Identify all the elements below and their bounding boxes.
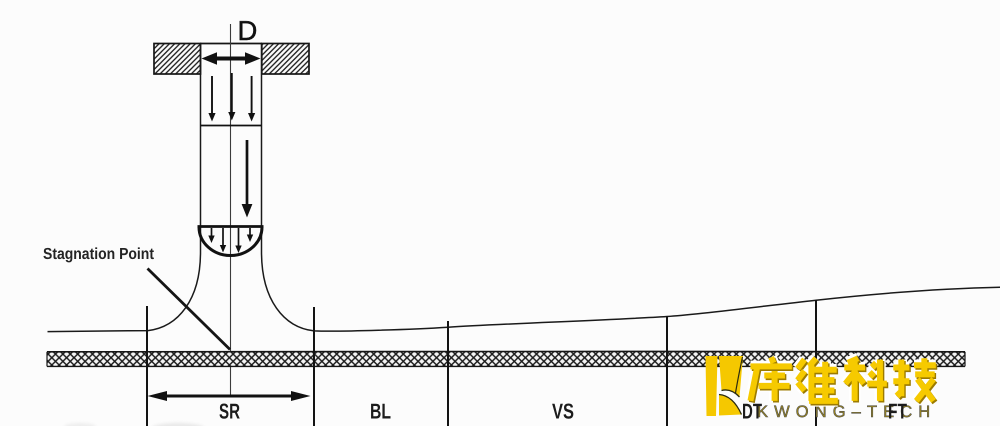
svg-text:D: D [238, 15, 258, 46]
svg-text:VS: VS [552, 400, 574, 424]
svg-text:SR: SR [219, 400, 240, 424]
svg-text:KWONG–TECH: KWONG–TECH [757, 403, 936, 421]
svg-text:DT: DT [742, 400, 762, 424]
svg-text:FT: FT [888, 400, 907, 424]
svg-text:BL: BL [370, 400, 391, 424]
svg-text:Stagnation Point: Stagnation Point [43, 246, 155, 263]
